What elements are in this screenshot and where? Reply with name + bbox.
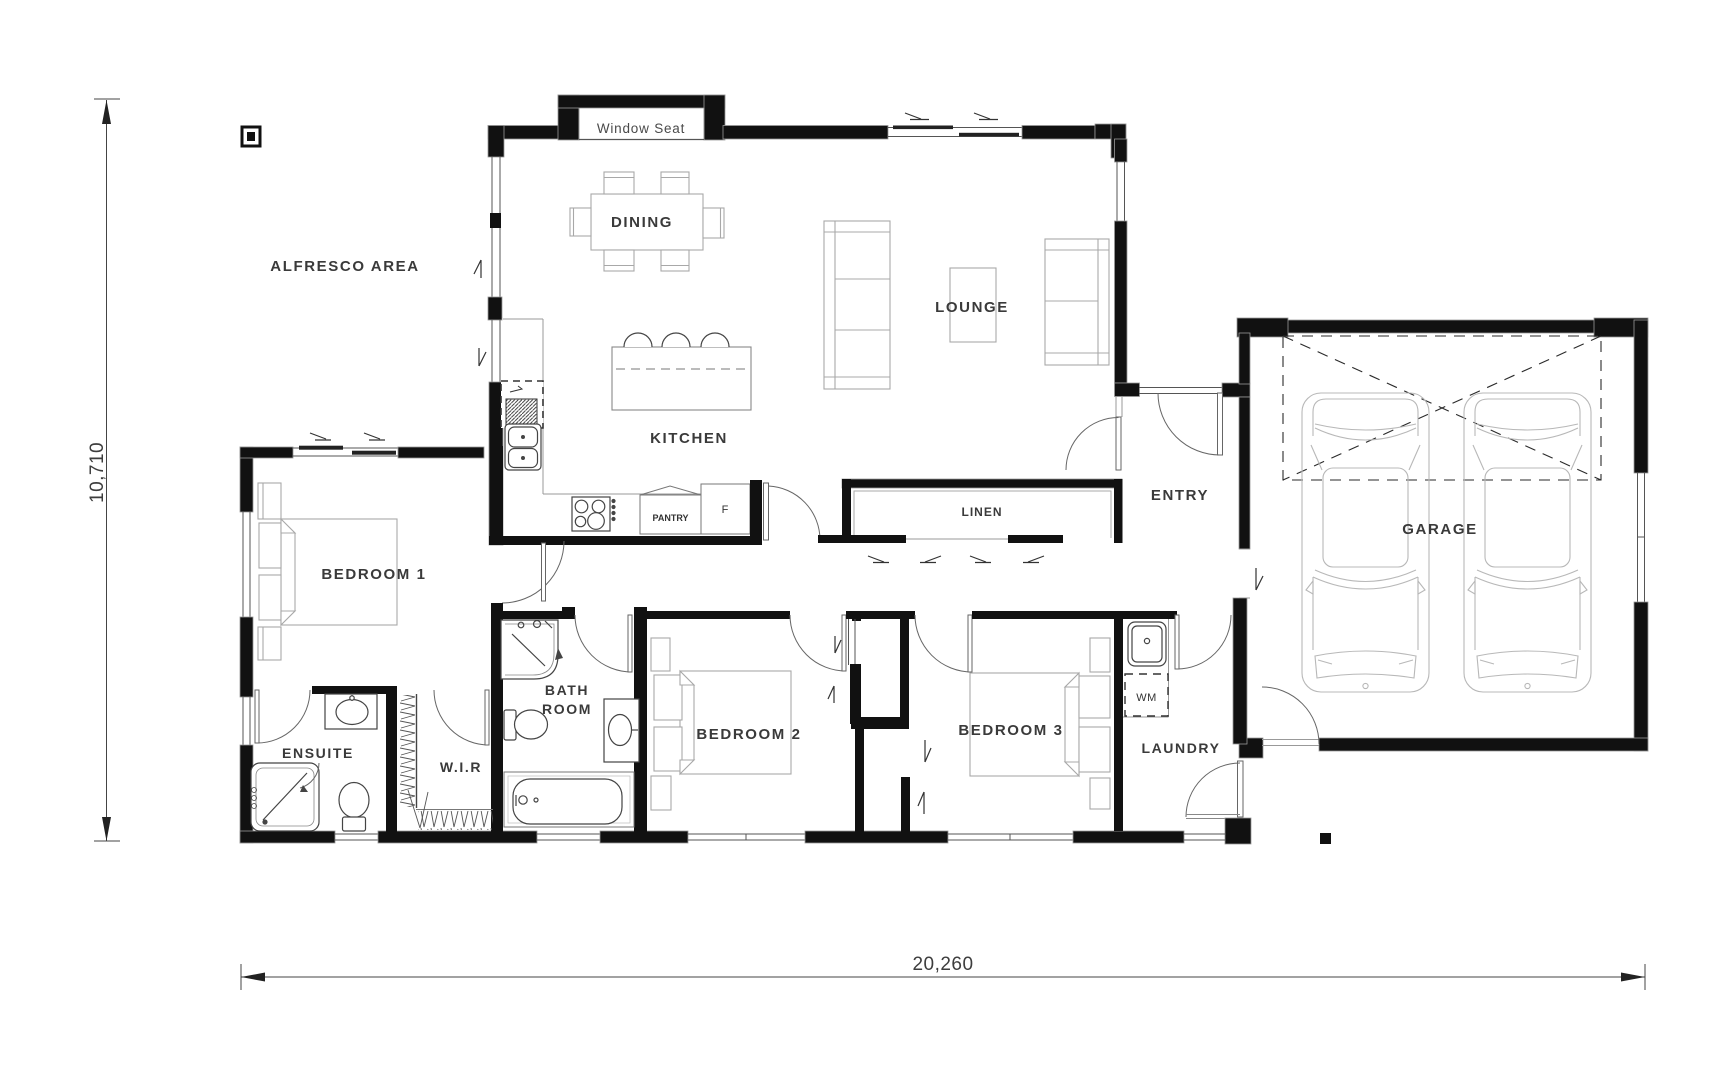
svg-text:KITCHEN: KITCHEN xyxy=(650,430,728,447)
svg-text:DINING: DINING xyxy=(611,214,673,231)
svg-text:Window Seat: Window Seat xyxy=(597,121,685,136)
svg-text:ENSUITE: ENSUITE xyxy=(282,745,354,761)
svg-text:LOUNGE: LOUNGE xyxy=(935,299,1009,316)
svg-text:BATH: BATH xyxy=(545,682,589,698)
svg-text:GARAGE: GARAGE xyxy=(1402,521,1477,538)
svg-text:ENTRY: ENTRY xyxy=(1151,487,1209,504)
svg-text:F: F xyxy=(722,504,729,516)
svg-text:BEDROOM 2: BEDROOM 2 xyxy=(696,726,801,743)
svg-text:BEDROOM 1: BEDROOM 1 xyxy=(321,566,426,583)
svg-text:LAUNDRY: LAUNDRY xyxy=(1141,740,1220,756)
svg-text:ROOM: ROOM xyxy=(542,701,592,717)
svg-text:ALFRESCO AREA: ALFRESCO AREA xyxy=(270,258,419,275)
svg-text:PANTRY: PANTRY xyxy=(653,513,689,523)
svg-text:BEDROOM 3: BEDROOM 3 xyxy=(958,722,1063,739)
svg-text:WM: WM xyxy=(1136,692,1157,704)
svg-text:LINEN: LINEN xyxy=(962,505,1003,519)
svg-text:W.I.R: W.I.R xyxy=(440,759,482,775)
svg-text:10,710: 10,710 xyxy=(87,442,108,503)
svg-text:20,260: 20,260 xyxy=(912,954,973,975)
